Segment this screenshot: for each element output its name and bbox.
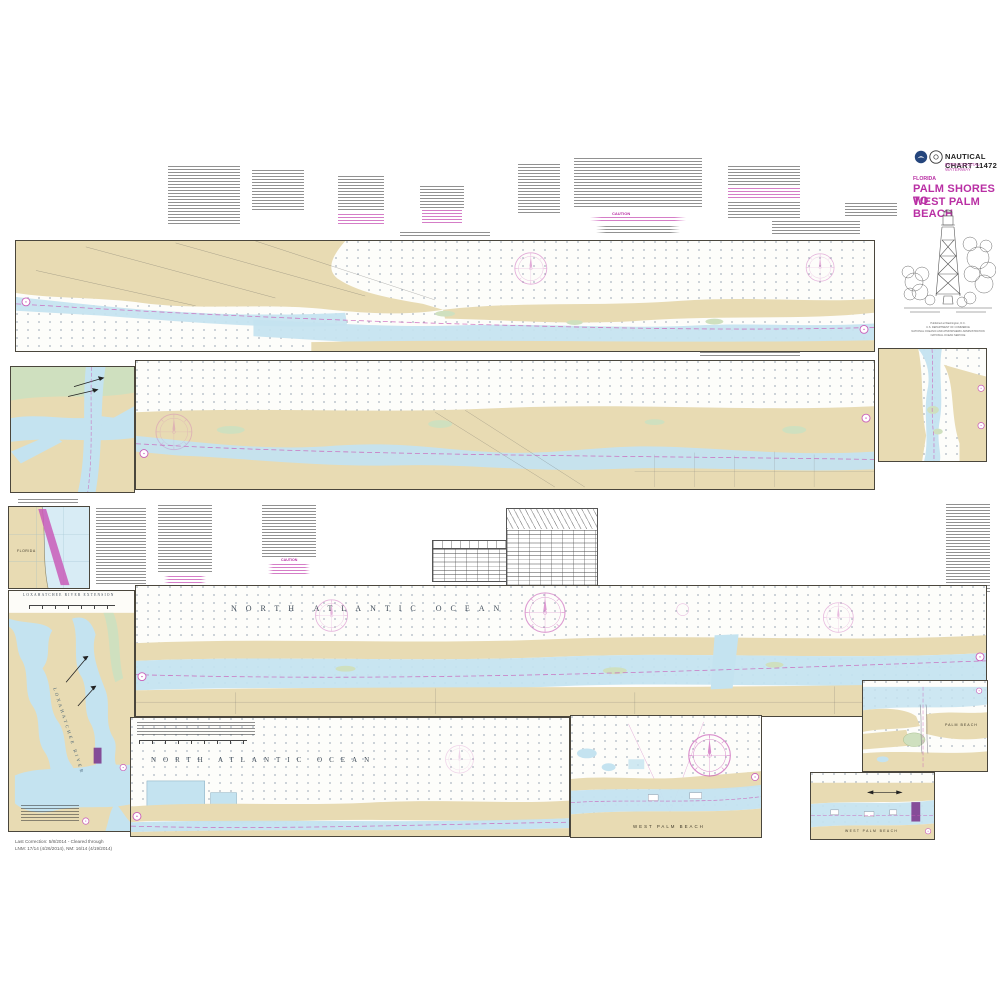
note-text-block xyxy=(728,166,800,186)
compass-rose-icon xyxy=(515,253,547,284)
commerce-logo-icon xyxy=(930,151,942,163)
lake xyxy=(877,756,889,762)
icw-strip-panel-2 xyxy=(135,360,875,490)
west-palm-beach-label: WEST PALM BEACH xyxy=(633,824,705,829)
insetD-map xyxy=(9,591,134,831)
join-marker-icon xyxy=(120,764,126,770)
inset-title: LOXAHATCHEE RIVER EXTENSION xyxy=(23,593,115,597)
compass-rose-icon xyxy=(525,593,565,632)
caution-heading: CAUTION xyxy=(281,558,297,562)
land-area xyxy=(879,349,926,461)
note-text-block xyxy=(168,166,240,226)
mainland-south xyxy=(311,340,874,351)
mainland-south xyxy=(571,808,761,837)
caution-note-block xyxy=(268,564,310,576)
join-marker-icon xyxy=(862,414,870,422)
west-palm-beach-label: WEST PALM BEACH xyxy=(845,829,898,833)
icw-strip-panel-3: NORTH ATLANTIC OCEAN xyxy=(135,585,987,717)
bridge-table xyxy=(432,540,512,582)
land-area xyxy=(863,709,920,732)
index-title xyxy=(18,499,78,503)
note-text-block xyxy=(252,170,304,212)
inset-palm-beach: PALM BEACH xyxy=(862,680,988,772)
correction-note: Last Correction: 5/8/2014 - Cleared thro… xyxy=(15,839,112,852)
chart-series: INTRACOASTAL WATERWAY xyxy=(945,162,1000,172)
index-map xyxy=(9,507,89,588)
insetA-map xyxy=(11,367,134,492)
water-north xyxy=(863,687,987,710)
note-text-block xyxy=(700,352,800,357)
compass-rose-icon xyxy=(823,603,853,633)
note-text-block xyxy=(338,176,384,210)
lagoon-water xyxy=(136,653,986,690)
soundings-note xyxy=(400,232,490,236)
compass-rose-icon xyxy=(689,735,731,776)
caution-note-block xyxy=(164,576,206,584)
barrier-island xyxy=(131,801,569,823)
anchorage-area xyxy=(147,781,205,807)
note-text-block xyxy=(420,186,464,208)
inset-loxahatchee-river: LOXAHATCHEE RIVER EXTENSION LOXAHATCHEE … xyxy=(8,590,135,832)
inset-west-palm-beach: WEST PALM BEACH xyxy=(570,715,762,838)
florida-label: FLORIDA xyxy=(17,549,36,553)
scale-bar xyxy=(139,740,247,744)
join-marker-icon xyxy=(976,688,982,693)
icw-strip-panel-4: NORTH ATLANTIC OCEAN xyxy=(130,717,570,837)
note-text-block xyxy=(262,505,316,557)
compass-circle xyxy=(677,604,689,616)
join-marker-icon xyxy=(22,298,30,306)
abbreviations-block xyxy=(574,158,702,208)
land-area xyxy=(16,241,443,313)
restricted-area xyxy=(94,748,102,764)
note-text-block xyxy=(137,722,255,736)
caution-note-block xyxy=(422,210,462,224)
note-text-block xyxy=(728,202,800,218)
marsh-island xyxy=(903,733,925,747)
caution-heading: CAUTION xyxy=(612,211,630,216)
caution-note-block xyxy=(590,217,686,223)
note-text-block xyxy=(158,505,212,573)
join-marker-icon xyxy=(978,385,984,391)
marsh-island xyxy=(927,406,939,414)
join-marker-icon xyxy=(133,812,141,820)
join-marker-icon xyxy=(138,673,146,681)
lake xyxy=(628,759,644,769)
agency-logos xyxy=(914,150,944,164)
ocean-label: NORTH ATLANTIC OCEAN xyxy=(231,604,508,613)
join-marker-icon xyxy=(860,325,868,333)
insetE-map xyxy=(571,716,761,837)
inset-waterway-detail: WEST PALM BEACH xyxy=(810,772,935,840)
distances-table xyxy=(506,508,598,586)
compass-rose-icon xyxy=(806,254,834,282)
lighthouse-illustration-icon xyxy=(900,208,996,320)
note-text-block xyxy=(845,203,897,217)
inset-river-junction xyxy=(10,366,135,493)
join-marker-icon xyxy=(140,450,148,458)
compass-rose-icon xyxy=(446,746,474,774)
compass-rose-icon xyxy=(156,414,192,449)
icw-strip-panel-1 xyxy=(15,240,875,352)
join-marker-icon xyxy=(978,422,984,428)
ocean-label: NORTH ATLANTIC OCEAN xyxy=(151,756,376,764)
note-text-block xyxy=(946,504,990,592)
note-text-block xyxy=(772,221,860,235)
join-marker-icon xyxy=(976,653,984,661)
palm-beach-label: PALM BEACH xyxy=(945,723,978,727)
inset-chart-index: FLORIDA xyxy=(8,506,90,589)
restricted-area xyxy=(911,802,920,821)
note-text-block xyxy=(596,226,680,234)
join-marker-icon xyxy=(752,773,759,780)
correction-line2: LNM: 17/14 (4/26/2014), NM: 16/14 (4/19/… xyxy=(15,846,112,853)
strip1-map xyxy=(16,241,874,351)
marsh-island xyxy=(933,429,943,435)
insetB-map xyxy=(879,349,986,461)
note-text-block xyxy=(96,508,146,584)
publisher-caption: Published at Washington, D.C. U.S. DEPAR… xyxy=(900,322,996,338)
note-text-block xyxy=(518,164,560,214)
join-marker-icon xyxy=(925,829,931,834)
inset-waterway-north xyxy=(878,348,987,462)
barrier-island xyxy=(443,299,874,323)
lake xyxy=(602,763,616,771)
note-text-block xyxy=(21,805,79,823)
strip2-map xyxy=(136,361,874,489)
lake xyxy=(577,748,597,758)
correction-line1: Last Correction: 5/8/2014 - Cleared thro… xyxy=(15,839,112,846)
nautical-chart-sheet: CAUTION NAUTICAL CHART 11472 INTRACOASTA… xyxy=(0,0,1000,1000)
land-area xyxy=(944,365,986,461)
join-marker-icon xyxy=(83,818,89,824)
caution-note-block xyxy=(338,214,384,226)
chart-state: FLORIDA xyxy=(913,176,936,182)
caution-note-block xyxy=(728,188,800,200)
scale-bar xyxy=(29,605,115,609)
